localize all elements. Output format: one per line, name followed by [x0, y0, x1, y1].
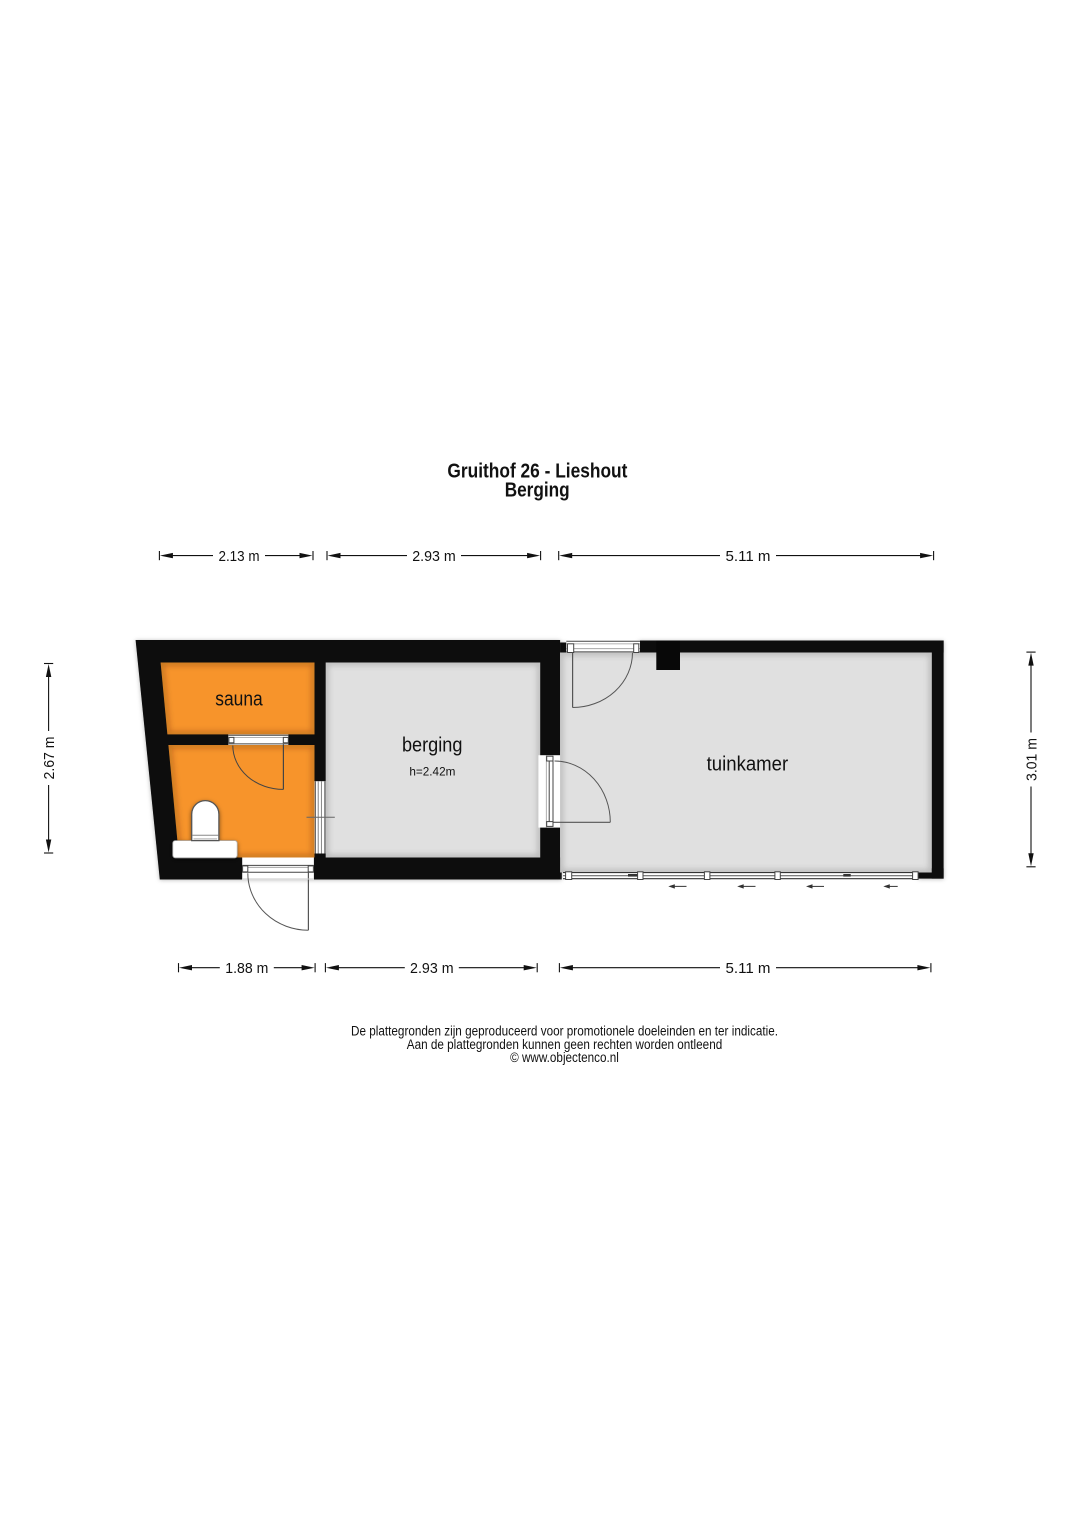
svg-text:sauna: sauna [215, 688, 263, 710]
svg-text:5.11 m: 5.11 m [726, 960, 771, 977]
svg-text:2.13 m: 2.13 m [219, 548, 260, 565]
svg-text:2.93 m: 2.93 m [412, 548, 456, 565]
svg-text:1.88 m: 1.88 m [225, 960, 268, 977]
svg-text:© www.objectenco.nl: © www.objectenco.nl [510, 1050, 619, 1065]
svg-text:Berging: Berging [505, 479, 570, 501]
svg-text:h=2.42m: h=2.42m [409, 765, 455, 779]
svg-text:2.93 m: 2.93 m [410, 960, 454, 977]
svg-text:berging: berging [402, 735, 463, 757]
svg-text:tuinkamer: tuinkamer [707, 754, 789, 776]
svg-text:2.67 m: 2.67 m [41, 737, 58, 780]
svg-text:3.01 m: 3.01 m [1023, 738, 1040, 781]
svg-text:5.11 m: 5.11 m [726, 548, 771, 565]
